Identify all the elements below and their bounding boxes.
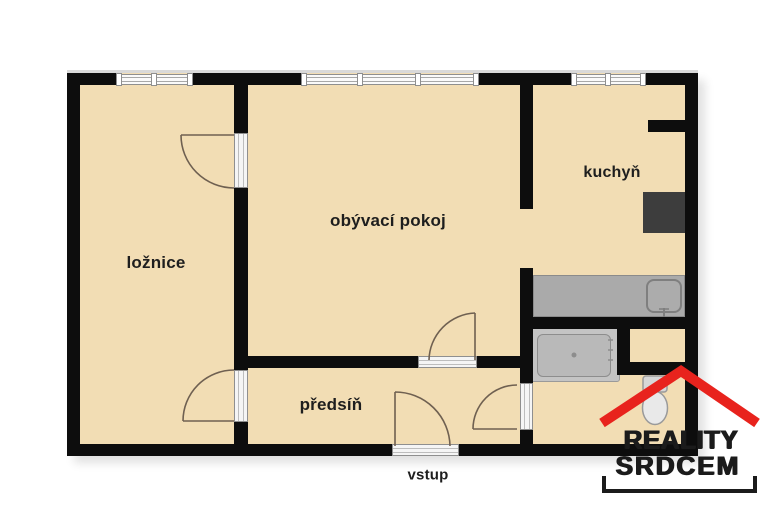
wall xyxy=(617,329,630,375)
wall xyxy=(520,317,698,329)
window-mullion xyxy=(473,73,479,86)
room-label-living-room: obývací pokoj xyxy=(330,211,446,231)
window-mullion xyxy=(116,73,122,86)
wall xyxy=(234,85,248,133)
window-mullion xyxy=(640,73,646,86)
window-mullion xyxy=(151,73,157,86)
wall xyxy=(520,85,533,209)
wall xyxy=(520,430,533,444)
window-mullion xyxy=(187,73,193,86)
window-mullion xyxy=(301,73,307,86)
wall xyxy=(478,73,572,85)
wall xyxy=(685,73,698,456)
door-threshold xyxy=(520,383,533,430)
room-label-hallway: předsíň xyxy=(300,395,363,415)
door-threshold xyxy=(234,370,248,422)
stove-icon xyxy=(643,192,686,233)
room-label-kitchen: kuchyň xyxy=(583,164,640,182)
wall xyxy=(192,73,302,85)
wall xyxy=(67,444,392,456)
door-threshold xyxy=(418,356,477,368)
floorplan-canvas: ložnice obývací pokoj kuchyň předsíň vst… xyxy=(0,0,768,531)
wall xyxy=(234,356,418,368)
wall xyxy=(630,362,686,375)
bathtub-icon xyxy=(529,328,620,382)
wall xyxy=(67,73,80,456)
kitchen-counter xyxy=(533,275,685,317)
entrance-label: vstup xyxy=(407,467,448,484)
window-mullion xyxy=(571,73,577,86)
window-mullion xyxy=(605,73,611,86)
wall xyxy=(234,188,248,370)
window-icon xyxy=(572,74,645,85)
bathtub-basin xyxy=(537,334,611,377)
door-threshold xyxy=(234,133,248,188)
wall xyxy=(234,422,248,444)
exterior-frame-line xyxy=(67,70,698,73)
entrance-door-threshold xyxy=(392,444,459,456)
window-mullion xyxy=(357,73,363,86)
logo-text-line2: SRDCEM xyxy=(616,451,741,482)
window-icon xyxy=(302,74,478,85)
wall xyxy=(648,120,686,132)
window-mullion xyxy=(415,73,421,86)
window-icon xyxy=(117,74,192,85)
room-label-bedroom: ložnice xyxy=(126,253,185,273)
